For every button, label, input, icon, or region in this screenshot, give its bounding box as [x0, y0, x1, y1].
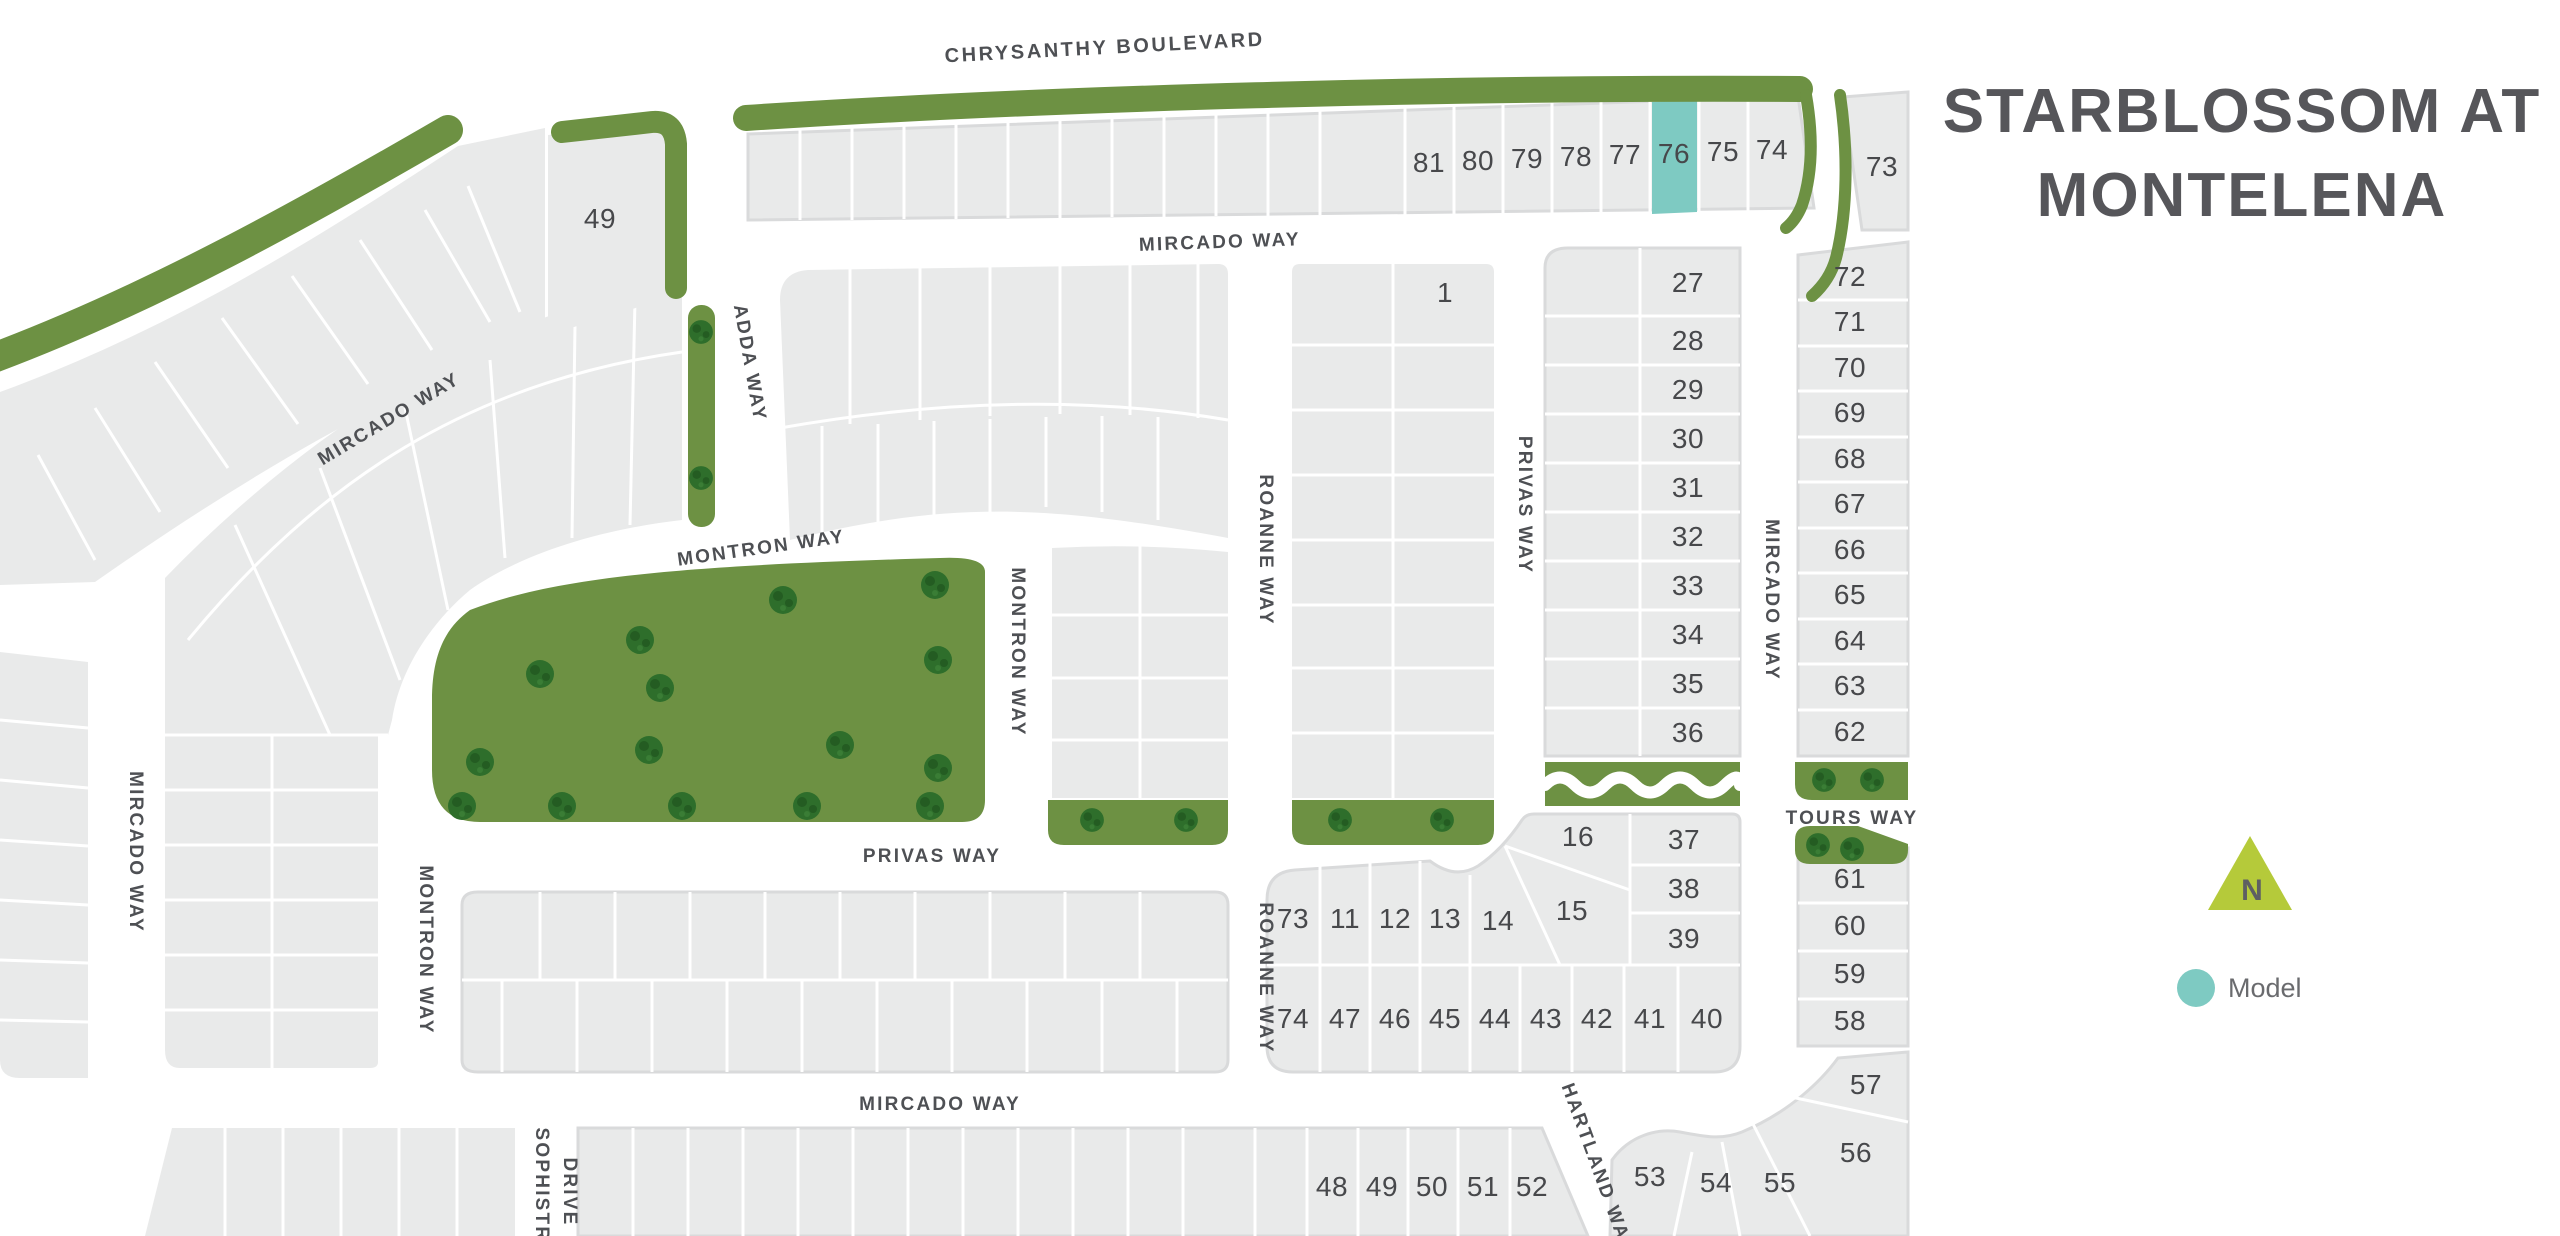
greenbelt-privas-b [1292, 800, 1494, 845]
lot-label-39[interactable]: 39 [1668, 923, 1700, 954]
lot-label-29[interactable]: 29 [1672, 374, 1704, 405]
lot-label-32[interactable]: 32 [1672, 521, 1704, 552]
tree-icon [769, 586, 797, 614]
lot-label-73[interactable]: 73 [1866, 151, 1898, 182]
lot-label-44[interactable]: 44 [1479, 1003, 1511, 1034]
tree-icon [668, 792, 696, 820]
lot-label-52[interactable]: 52 [1516, 1171, 1548, 1202]
street-label-mircado-right: MIRCADO WAY [1761, 519, 1782, 681]
lot-label-12[interactable]: 12 [1379, 903, 1411, 934]
lot-label-50[interactable]: 50 [1416, 1171, 1448, 1202]
lot-label-68[interactable]: 68 [1834, 443, 1866, 474]
lot-label-69[interactable]: 69 [1834, 397, 1866, 428]
lot-label-49-upper[interactable]: 49 [584, 203, 616, 234]
greenbelt-tours-a [1795, 762, 1908, 800]
tree-icon [1430, 808, 1454, 832]
legend-model-label: Model [2228, 973, 2302, 1003]
street-label-montron-right: MONTRON WAY [1007, 567, 1028, 736]
lot-label-54[interactable]: 54 [1700, 1167, 1732, 1198]
street-label-tours: TOURS WAY [1786, 808, 1919, 829]
legend-model-swatch [2177, 969, 2215, 1007]
lot-label-40[interactable]: 40 [1691, 1003, 1723, 1034]
lot-label-65[interactable]: 65 [1834, 579, 1866, 610]
tree-icon [626, 626, 654, 654]
page-title-line1: STARBLOSSOM AT [1943, 77, 2542, 146]
street-label-roanne-lower: ROANNE WAY [1255, 902, 1276, 1053]
lot-label-77[interactable]: 77 [1609, 139, 1641, 170]
lot-label-58[interactable]: 58 [1834, 1005, 1866, 1036]
tree-icon [826, 731, 854, 759]
lot-label-13[interactable]: 13 [1429, 903, 1461, 934]
street-label-sophistry-line1: SOPHISTRY [531, 1128, 552, 1236]
lot-label-60[interactable]: 60 [1834, 910, 1866, 941]
tree-icon [793, 792, 821, 820]
tree-icon [466, 748, 494, 776]
lot-label-46[interactable]: 46 [1379, 1003, 1411, 1034]
block-west-strip [0, 652, 88, 1078]
lot-label-81[interactable]: 81 [1413, 147, 1445, 178]
tree-icon [1840, 837, 1864, 861]
lot-label-48[interactable]: 48 [1316, 1171, 1348, 1202]
tree-icon [1812, 768, 1836, 792]
lot-label-37[interactable]: 37 [1668, 824, 1700, 855]
block-middle-column [1545, 248, 1740, 756]
paseo-wavy [1545, 762, 1740, 806]
block-bottom-left-row [145, 1128, 515, 1236]
tree-icon [924, 646, 952, 674]
lot-label-64[interactable]: 64 [1834, 625, 1866, 656]
street-label-privas-bottom: PRIVAS WAY [863, 846, 1001, 867]
tree-icon [448, 792, 476, 820]
lot-label-38[interactable]: 38 [1668, 873, 1700, 904]
lot-label-47[interactable]: 47 [1329, 1003, 1361, 1034]
street-label-mircado-left: MIRCADO WAY [125, 771, 146, 933]
lot-label-53[interactable]: 53 [1634, 1161, 1666, 1192]
lot-label-51[interactable]: 51 [1467, 1171, 1499, 1202]
lot-label-55[interactable]: 55 [1764, 1167, 1796, 1198]
street-label-sophistry-line2: DRIVE [559, 1157, 580, 1226]
street-label-privas-vertical: PRIVAS WAY [1514, 436, 1535, 574]
site-map: CHRYSANTHY BOULEVARD MIRCADO WAY MIRCADO… [0, 0, 2560, 1236]
tree-icon [916, 792, 944, 820]
lot-label-63[interactable]: 63 [1834, 670, 1866, 701]
tree-icon [921, 571, 949, 599]
block-upper-middle [780, 264, 1228, 540]
lot-label-11[interactable]: 11 [1330, 903, 1360, 934]
lot-label-16[interactable]: 16 [1562, 821, 1594, 852]
lot-label-79[interactable]: 79 [1511, 143, 1543, 174]
park [432, 558, 985, 822]
lot-label-78[interactable]: 78 [1560, 141, 1592, 172]
lot-label-36[interactable]: 36 [1672, 717, 1704, 748]
tree-icon [1174, 808, 1198, 832]
lot-label-71[interactable]: 71 [1834, 306, 1866, 337]
lot-label-76-model[interactable]: 76 [1658, 138, 1690, 169]
lot-label-61[interactable]: 61 [1834, 863, 1866, 894]
street-label-montron-left: MONTRON WAY [415, 865, 436, 1034]
tree-icon [924, 754, 952, 782]
tree-icon [526, 660, 554, 688]
lot-label-33[interactable]: 33 [1672, 570, 1704, 601]
tree-icon [646, 674, 674, 702]
lot-label-43[interactable]: 43 [1530, 1003, 1562, 1034]
lot-label-72[interactable]: 72 [1834, 261, 1866, 292]
greenbelt-privas-a [1048, 800, 1228, 845]
lot-label-57[interactable]: 57 [1850, 1069, 1882, 1100]
lot-label-66[interactable]: 66 [1834, 534, 1866, 565]
lot-label-62[interactable]: 62 [1834, 716, 1866, 747]
lot-label-28[interactable]: 28 [1672, 325, 1704, 356]
lot-label-1[interactable]: 1 [1437, 277, 1453, 308]
lot-label-59[interactable]: 59 [1834, 958, 1866, 989]
lot-label-49-bottom[interactable]: 49 [1366, 1171, 1398, 1202]
lot-label-15[interactable]: 15 [1556, 895, 1588, 926]
tree-icon [1860, 768, 1884, 792]
lot-label-35[interactable]: 35 [1672, 668, 1704, 699]
tree-icon [1080, 808, 1104, 832]
street-label-adda: ADDA WAY [729, 303, 770, 423]
site-plan-page: CHRYSANTHY BOULEVARD MIRCADO WAY MIRCADO… [0, 0, 2560, 1236]
tree-icon [689, 466, 713, 490]
lot-label-70[interactable]: 70 [1834, 352, 1866, 383]
lot-label-67[interactable]: 67 [1834, 488, 1866, 519]
north-label: N [2241, 874, 2263, 907]
lot-label-14[interactable]: 14 [1482, 905, 1514, 936]
lot-label-75[interactable]: 75 [1707, 136, 1739, 167]
lot-label-56[interactable]: 56 [1840, 1137, 1872, 1168]
lot-label-30[interactable]: 30 [1672, 423, 1704, 454]
tree-icon [689, 320, 713, 344]
lot-label-42[interactable]: 42 [1581, 1003, 1613, 1034]
tree-icon [1806, 833, 1830, 857]
tree-icon [635, 736, 663, 764]
street-label-roanne-upper: ROANNE WAY [1255, 474, 1276, 625]
lot-label-34[interactable]: 34 [1672, 619, 1704, 650]
lot-label-80[interactable]: 80 [1462, 145, 1494, 176]
tree-icon [548, 792, 576, 820]
lot-label-74-central[interactable]: 74 [1277, 1003, 1309, 1034]
lot-label-74[interactable]: 74 [1756, 134, 1788, 165]
street-label-chrysanthy: CHRYSANTHY BOULEVARD [944, 29, 1265, 68]
page-title-line2: MONTELENA [2037, 161, 2448, 230]
lot-label-27[interactable]: 27 [1672, 267, 1704, 298]
lot-label-41[interactable]: 41 [1634, 1003, 1666, 1034]
lot-label-73-central[interactable]: 73 [1277, 903, 1309, 934]
lot-label-31[interactable]: 31 [1672, 472, 1704, 503]
tree-icon [1328, 808, 1352, 832]
lot-label-45[interactable]: 45 [1429, 1003, 1461, 1034]
street-label-mircado-bottom: MIRCADO WAY [859, 1094, 1021, 1115]
street-label-mircado-top: MIRCADO WAY [1139, 229, 1301, 256]
